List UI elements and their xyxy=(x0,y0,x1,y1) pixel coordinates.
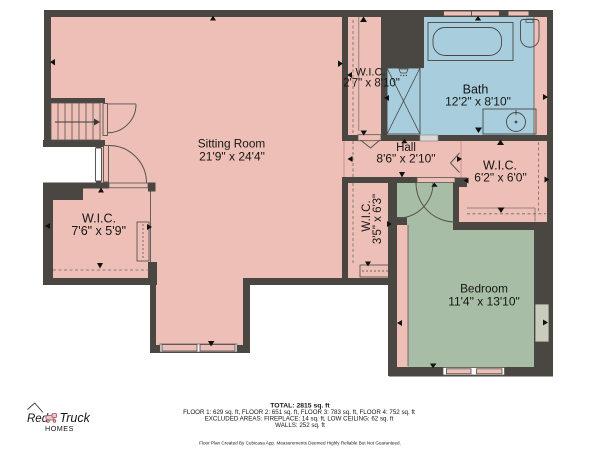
svg-text:Bedroom: Bedroom xyxy=(460,282,508,296)
svg-text:6'2" x 6'0": 6'2" x 6'0" xyxy=(474,171,526,185)
svg-text:Truck: Truck xyxy=(60,411,91,425)
svg-text:HOMES: HOMES xyxy=(45,424,74,433)
svg-text:3'5" x 6'3": 3'5" x 6'3" xyxy=(372,194,384,244)
svg-text:WALLS: 252 sq. ft: WALLS: 252 sq. ft xyxy=(275,422,325,429)
svg-text:2'7" x 8'10": 2'7" x 8'10" xyxy=(343,78,400,90)
svg-text:11'4" x 13'10": 11'4" x 13'10" xyxy=(448,295,520,309)
svg-text:Floor Plan Created By Cubicasa: Floor Plan Created By Cubicasa App. Meas… xyxy=(199,441,401,446)
svg-text:8'6" x 2'10": 8'6" x 2'10" xyxy=(376,152,435,166)
svg-text:Sitting Room: Sitting Room xyxy=(198,137,266,151)
svg-text:12'2" x 8'10": 12'2" x 8'10" xyxy=(445,95,511,109)
svg-text:21'9" x 24'4": 21'9" x 24'4" xyxy=(199,150,265,164)
svg-text:7'6" x 5'9": 7'6" x 5'9" xyxy=(71,224,126,238)
